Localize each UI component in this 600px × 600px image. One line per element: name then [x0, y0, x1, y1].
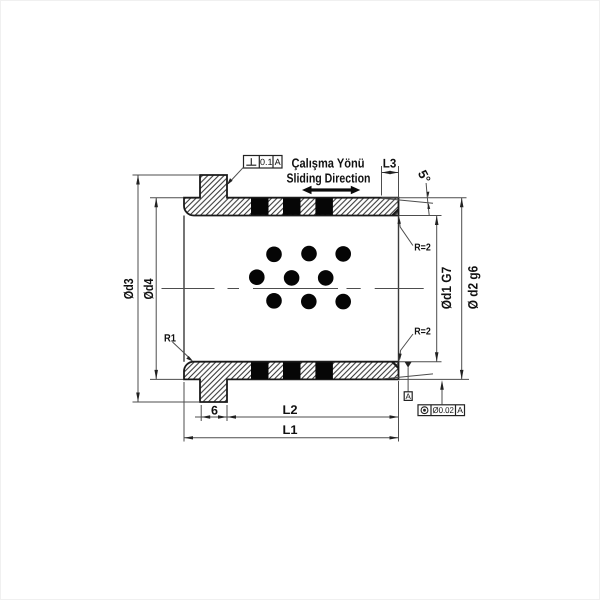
svg-text:Ød3: Ød3 — [121, 278, 136, 299]
svg-text:6: 6 — [211, 404, 218, 418]
svg-text:A: A — [275, 157, 281, 167]
svg-text:Ød4: Ød4 — [141, 278, 156, 300]
svg-text:R=2: R=2 — [414, 243, 431, 254]
svg-text:Ød1 G7: Ød1 G7 — [439, 267, 454, 310]
svg-text:R=2: R=2 — [414, 326, 431, 337]
svg-text:L3: L3 — [383, 157, 397, 171]
svg-text:Çalışma Yönü: Çalışma Yönü — [292, 155, 365, 170]
svg-text:Ø0.02: Ø0.02 — [432, 405, 454, 415]
svg-text:Ø d2 g6: Ø d2 g6 — [466, 265, 481, 309]
svg-text:L2: L2 — [283, 403, 298, 417]
svg-text:Sliding Direction: Sliding Direction — [287, 171, 371, 186]
svg-text:R1: R1 — [164, 332, 176, 344]
svg-text:L1: L1 — [283, 423, 298, 437]
svg-text:A: A — [406, 392, 412, 401]
svg-text:A: A — [457, 405, 463, 415]
svg-text:0.1: 0.1 — [260, 157, 273, 167]
